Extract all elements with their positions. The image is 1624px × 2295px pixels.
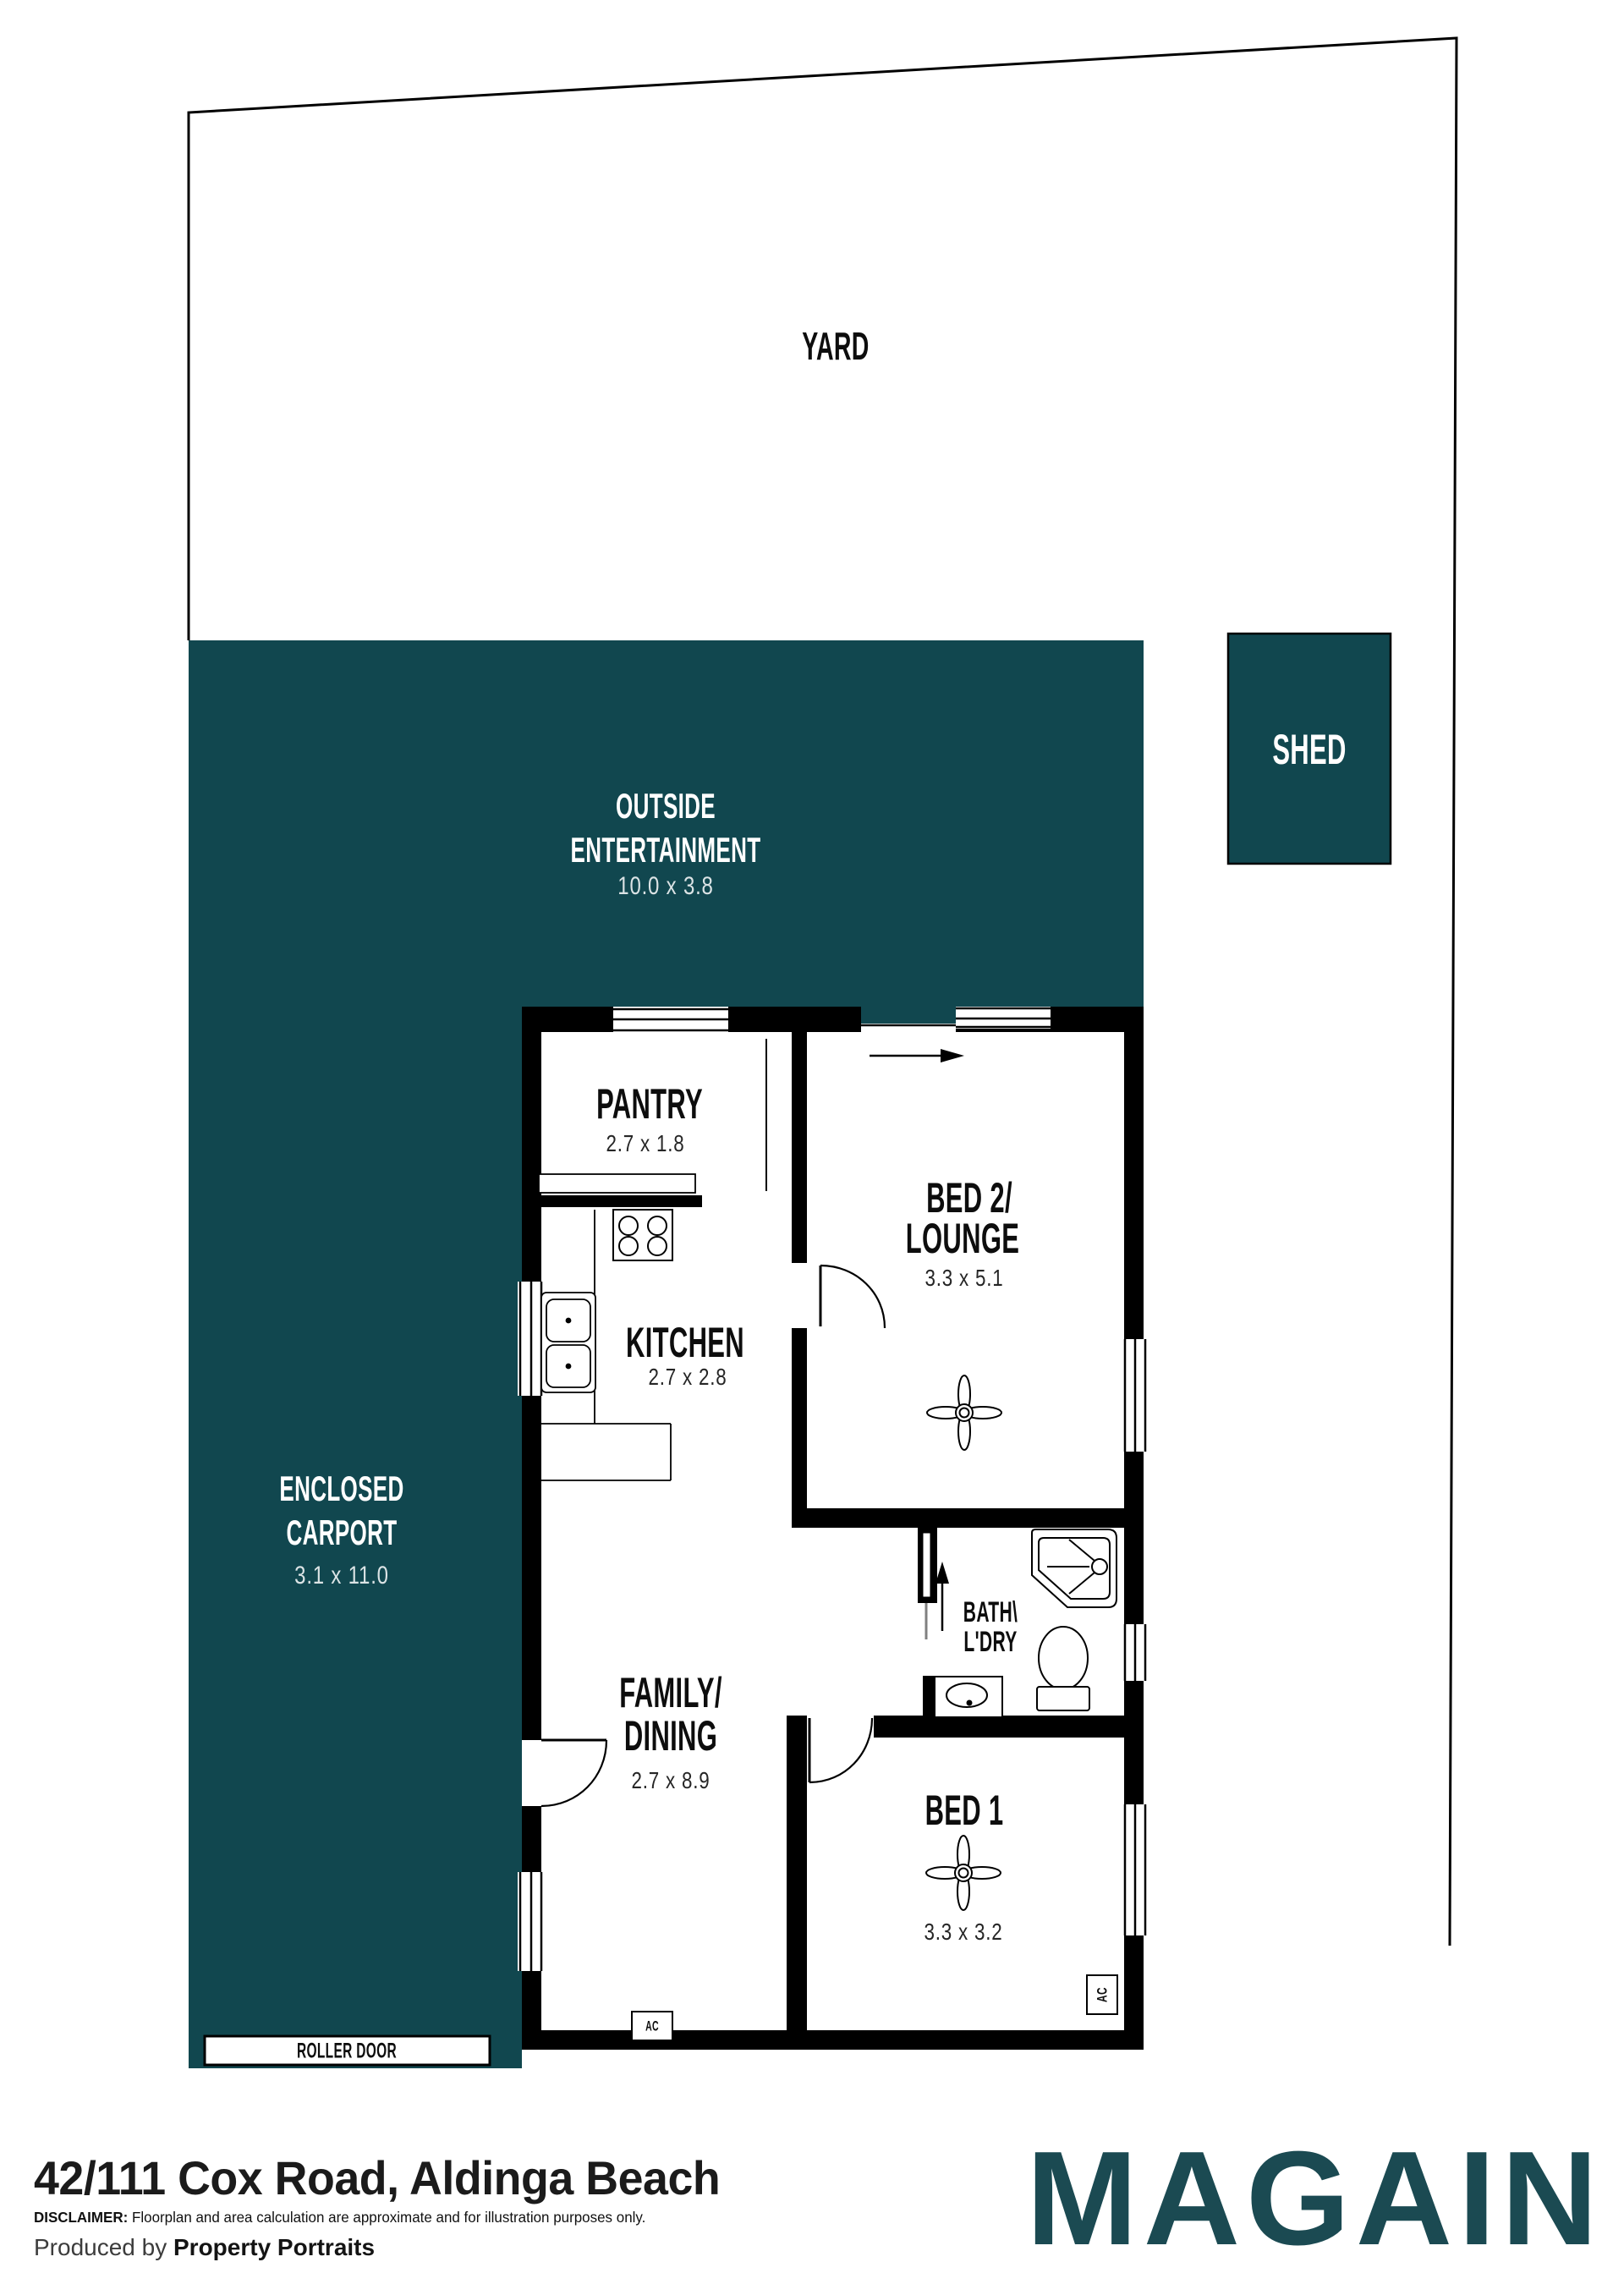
- window-family: [518, 1872, 543, 1971]
- disclaimer-prefix: DISCLAIMER:: [34, 2209, 128, 2226]
- outside-entertainment-label-line2: ENTERTAINMENT: [571, 832, 761, 868]
- shed-label: SHED: [1272, 728, 1346, 771]
- family-dims: 2.7 x 8.9: [631, 1769, 710, 1793]
- disclaimer-text: DISCLAIMER: Floorplan and area calculati…: [34, 2209, 645, 2226]
- bath-label-line1: BATH\: [963, 1598, 1018, 1627]
- produced-by-brand: Property Portraits: [173, 2234, 375, 2260]
- ceiling-fan-bed2-icon: [927, 1375, 1001, 1450]
- window-kitchen: [518, 1282, 543, 1396]
- exterior-walls: [522, 1007, 1144, 2050]
- ceiling-fan-bed1-icon: [926, 1836, 1001, 1910]
- stove-icon: [613, 1210, 672, 1260]
- bed2-label-line2: LOUNGE: [906, 1217, 1019, 1260]
- disclaimer-body: Floorplan and area calculation are appro…: [128, 2209, 645, 2226]
- bed2-dims: 3.3 x 5.1: [924, 1266, 1003, 1290]
- pantry-label: PANTRY: [596, 1083, 703, 1125]
- magain-logo: MAGAIN: [1003, 2132, 1604, 2267]
- pantry-bench: [539, 1174, 695, 1193]
- entry-opening: [861, 1007, 956, 1032]
- produced-by-prefix: Produced by: [34, 2234, 173, 2260]
- shower-icon: [1032, 1529, 1116, 1607]
- window-bed2-right: [1122, 1339, 1146, 1452]
- bed1-dims: 3.3 x 3.2: [924, 1920, 1002, 1944]
- bed1-label: BED 1: [925, 1789, 1004, 1831]
- kitchen-label: KITCHEN: [626, 1321, 744, 1364]
- bath-direction-arrow: [935, 1562, 949, 1631]
- bed2-door: [820, 1266, 885, 1328]
- family-label-line1: FAMILY/: [619, 1672, 722, 1714]
- kitchen-sink-icon: [541, 1293, 595, 1392]
- yard-label: YARD: [802, 327, 869, 365]
- roller-door-label: ROLLER DOOR: [297, 2041, 397, 2062]
- carport-label-line2: CARPORT: [287, 1515, 398, 1551]
- window-top-bed2: [956, 1007, 1051, 1029]
- carport-label-line1: ENCLOSED: [279, 1471, 403, 1507]
- outside-entertainment-dims: 10.0 x 3.8: [617, 874, 713, 899]
- bath-label-line2: L'DRY: [963, 1628, 1017, 1656]
- vanity-sink-icon: [935, 1677, 1002, 1717]
- floorplan-page: YARD SHED OUTSIDE ENTERTAINMENT 10.0 x 3…: [0, 0, 1624, 2295]
- outside-entertainment-label-line1: OUTSIDE: [616, 788, 716, 824]
- bed1-door: [809, 1718, 872, 1782]
- carport-dims: 3.1 x 11.0: [294, 1563, 389, 1589]
- pantry-dims: 2.7 x 1.8: [606, 1132, 684, 1156]
- toilet-icon: [1037, 1627, 1089, 1710]
- entry-direction-arrow: [870, 1049, 964, 1062]
- window-bath: [1122, 1624, 1146, 1681]
- family-door: [522, 1740, 606, 1806]
- family-label-line2: DINING: [624, 1715, 717, 1757]
- bed2-label-line1: BED 2/: [926, 1177, 1012, 1219]
- property-address: 42/111 Cox Road, Aldinga Beach: [34, 2150, 720, 2205]
- produced-by-line: Produced by Property Portraits: [34, 2234, 375, 2261]
- window-bed1: [1122, 1804, 1146, 1935]
- ac-label-bottom: AC: [645, 2019, 659, 2034]
- kitchen-dims: 2.7 x 2.8: [648, 1365, 727, 1389]
- ac-label-right: AC: [1095, 1987, 1110, 2002]
- window-top-pantry: [613, 1007, 728, 1032]
- bath-pocket-door: [923, 1533, 930, 1639]
